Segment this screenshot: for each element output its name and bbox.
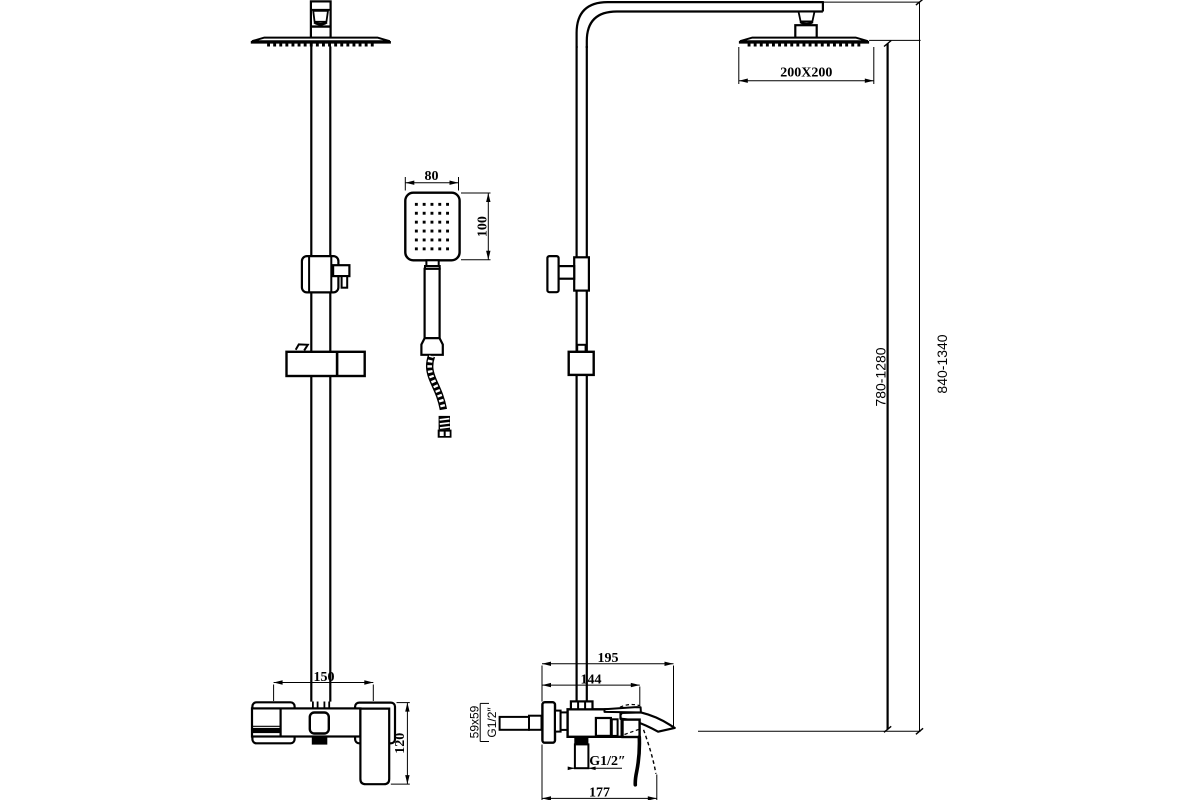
svg-text:80: 80 [425,169,439,184]
svg-text:177: 177 [589,786,610,800]
svg-text:59x59: 59x59 [468,705,482,738]
svg-text:150: 150 [314,670,335,685]
svg-text:G1/2″: G1/2″ [485,707,499,738]
svg-text:144: 144 [581,672,602,687]
svg-text:200X200: 200X200 [780,66,832,81]
svg-text:120: 120 [393,733,408,754]
svg-text:100: 100 [476,216,491,237]
svg-text:840-1340: 840-1340 [934,334,950,393]
svg-text:G1/2″: G1/2″ [589,754,626,769]
svg-text:780-1280: 780-1280 [873,347,889,406]
svg-text:195: 195 [598,651,619,666]
